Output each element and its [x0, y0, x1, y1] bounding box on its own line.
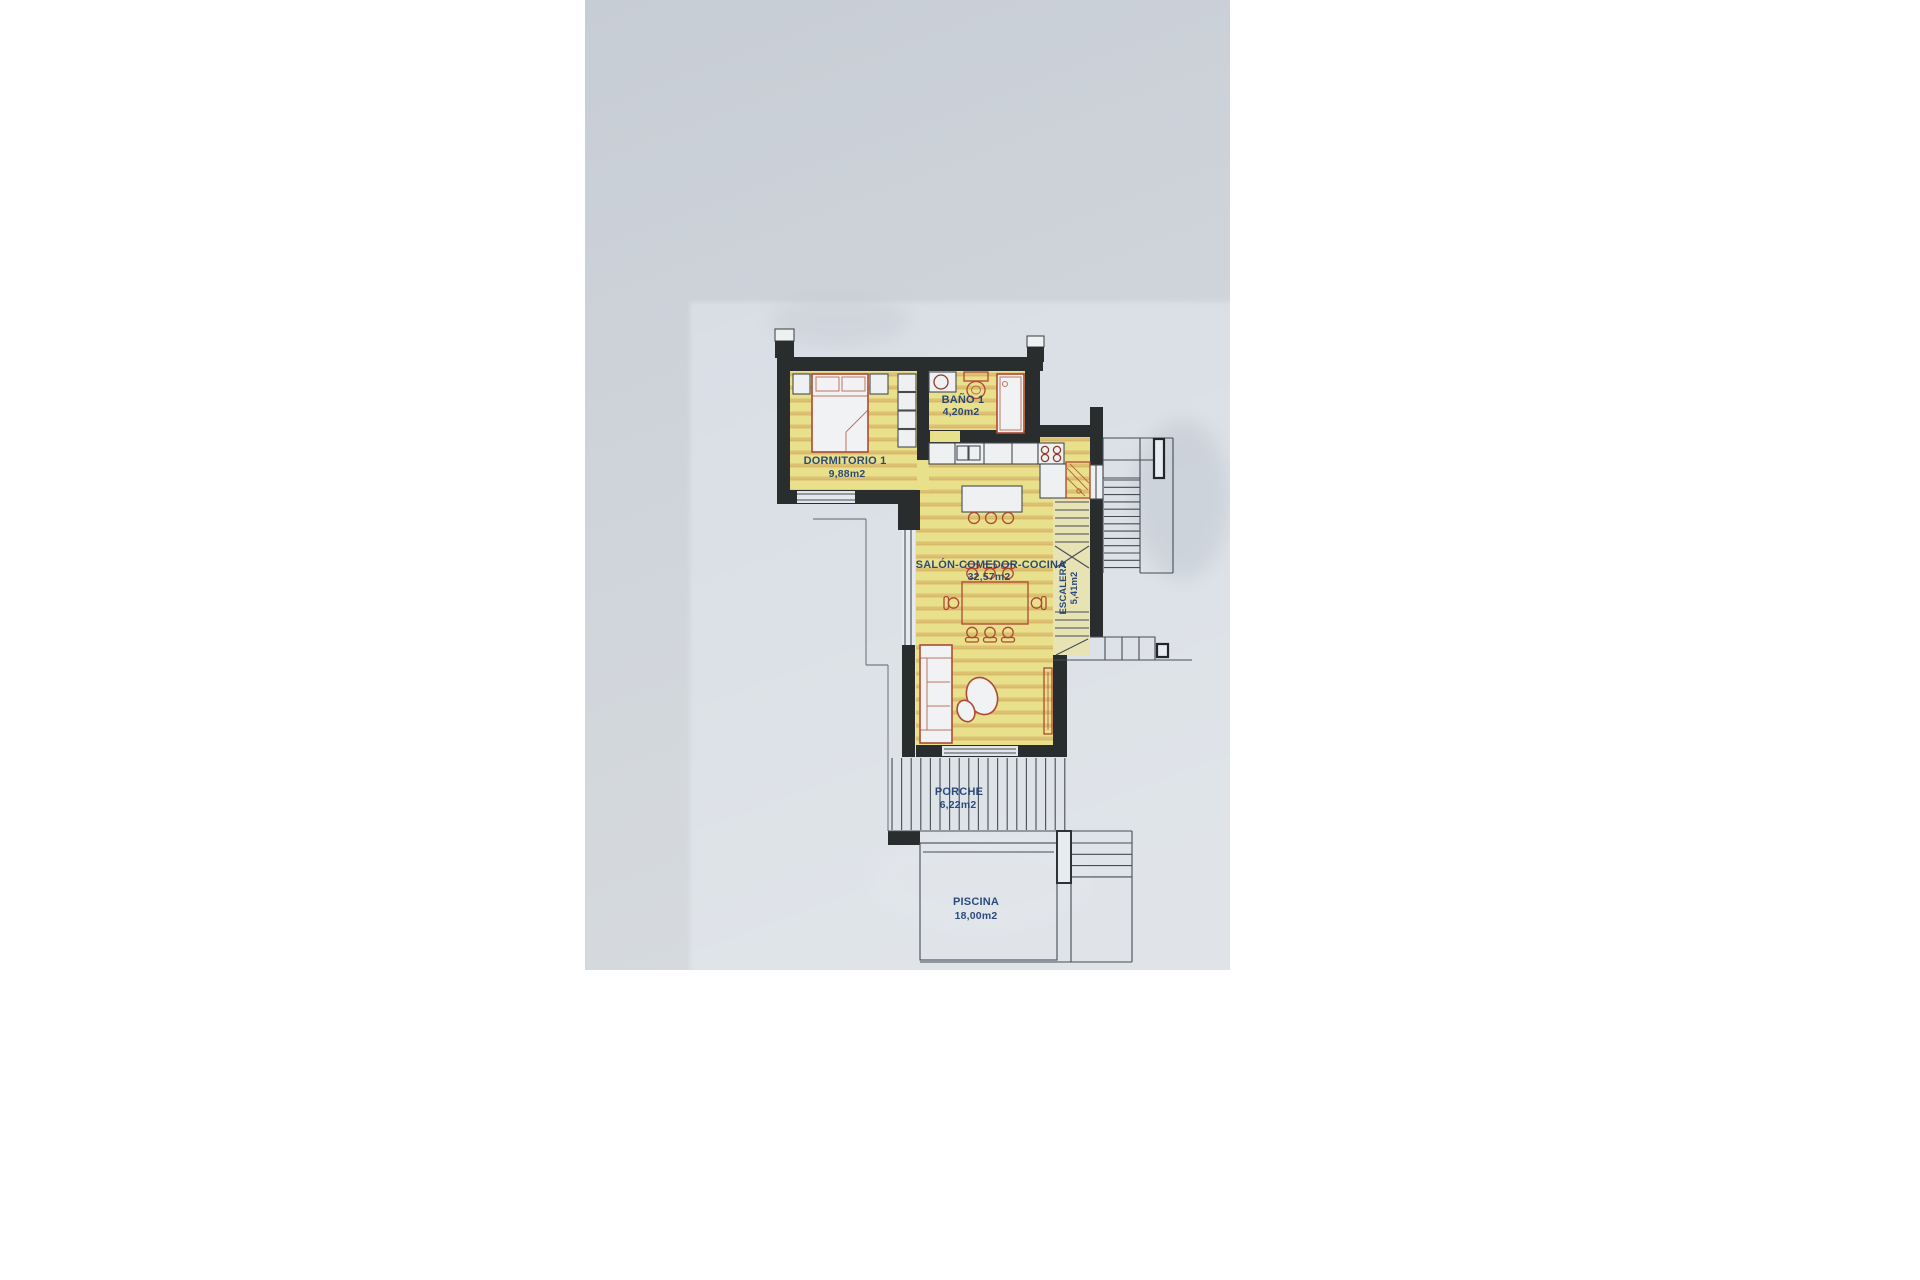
- sink-icon: [929, 372, 956, 392]
- nightstand-icon: [793, 374, 810, 394]
- photo-shadow: [1134, 420, 1230, 580]
- nightstand-icon: [870, 374, 888, 394]
- photo-area: DORMITORIO 1 9,88m2 BAÑO 1 4,20m2 SALÓN-…: [585, 0, 1235, 974]
- bathroom-door-opening: [930, 431, 960, 442]
- room-label-bano: BAÑO 1: [942, 393, 985, 406]
- room-label-escalera: ESCALERA: [1058, 561, 1069, 614]
- bed-icon: [812, 374, 868, 452]
- stove-icon: [1038, 443, 1064, 464]
- floor-plan-svg: DORMITORIO 1 9,88m2 BAÑO 1 4,20m2 SALÓN-…: [0, 0, 1920, 1280]
- room-label-porche: PORCHE: [935, 786, 983, 798]
- room-area-porche: 6,22m2: [940, 799, 977, 811]
- room-label-dormitorio: DORMITORIO 1: [804, 455, 887, 467]
- chimney-icon: [1027, 347, 1044, 362]
- sofa-icon: [920, 645, 952, 743]
- porch-sliding-door: [942, 746, 1018, 756]
- chimney-icon: [775, 341, 794, 358]
- bedroom-window: [797, 491, 855, 503]
- room-label-piscina: PISCINA: [953, 896, 999, 908]
- room-area-escalera: 5,41m2: [1069, 572, 1080, 605]
- kitchen-island: [962, 486, 1022, 512]
- wardrobe-icon: [898, 374, 916, 447]
- chimney-icon: [1027, 336, 1044, 347]
- room-label-salon: SALÓN-COMEDOR-COCINA: [916, 558, 1067, 571]
- porch-corner-wall: [888, 831, 920, 845]
- shower-icon: [997, 374, 1024, 433]
- scanned-floor-plan-photo: DORMITORIO 1 9,88m2 BAÑO 1 4,20m2 SALÓN-…: [0, 0, 1920, 1280]
- room-area-salon: 32,57m2: [968, 571, 1011, 583]
- room-area-dormitorio: 9,88m2: [829, 468, 866, 480]
- chimney-icon: [775, 329, 794, 341]
- pool-ladder: [1057, 831, 1071, 883]
- kitchen-counter: [1040, 464, 1066, 498]
- bedroom-door-opening: [917, 460, 929, 490]
- room-area-bano: 4,20m2: [943, 406, 980, 418]
- newel-post: [1154, 439, 1164, 478]
- salon-west-glazing: [902, 530, 915, 645]
- bedroom-furniture: [793, 374, 916, 452]
- room-area-piscina: 18,00m2: [955, 910, 998, 922]
- newel-post: [1157, 644, 1168, 657]
